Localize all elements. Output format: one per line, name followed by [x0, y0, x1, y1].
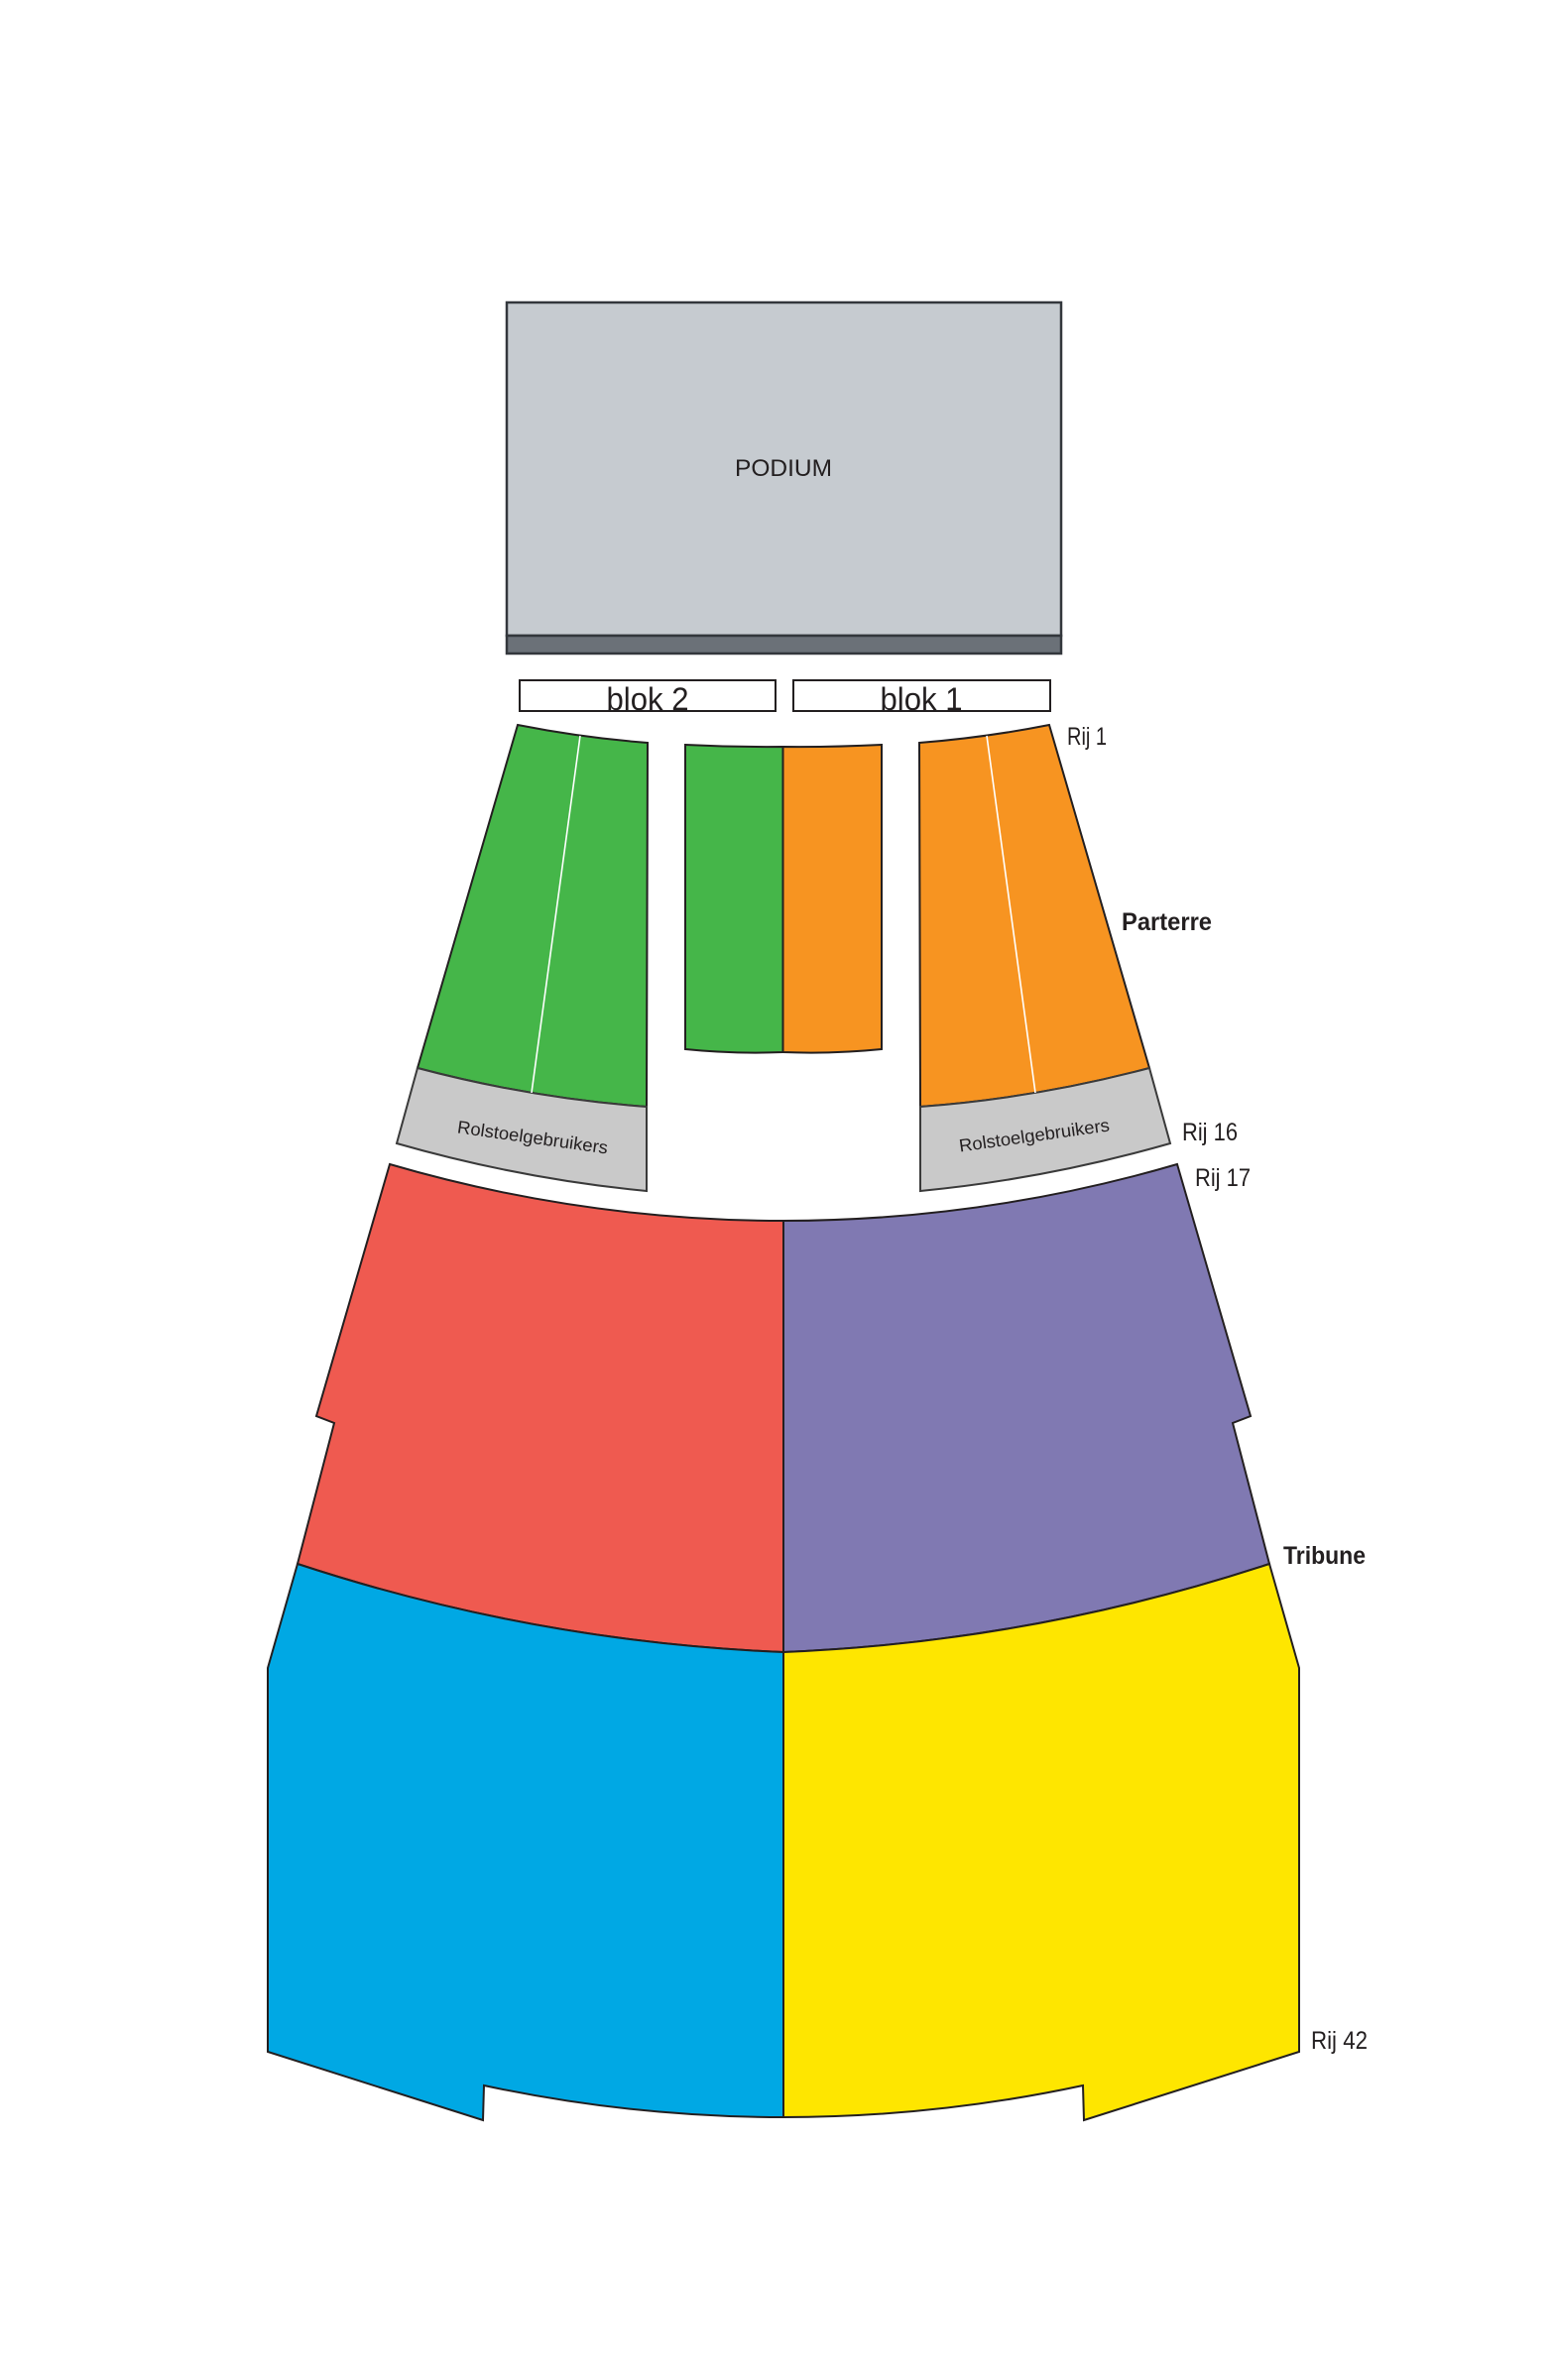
svg-text:blok 1: blok 1	[881, 681, 963, 717]
svg-text:blok 2: blok 2	[607, 681, 689, 717]
svg-text:Parterre: Parterre	[1122, 908, 1212, 936]
svg-text:Rij 17: Rij 17	[1195, 1164, 1251, 1192]
svg-text:Rij 42: Rij 42	[1311, 2027, 1368, 2055]
svg-text:Rij 16: Rij 16	[1182, 1119, 1238, 1146]
svg-text:Rij 1: Rij 1	[1067, 723, 1107, 751]
svg-text:PODIUM: PODIUM	[735, 455, 832, 482]
svg-text:Tribune: Tribune	[1283, 1542, 1366, 1570]
